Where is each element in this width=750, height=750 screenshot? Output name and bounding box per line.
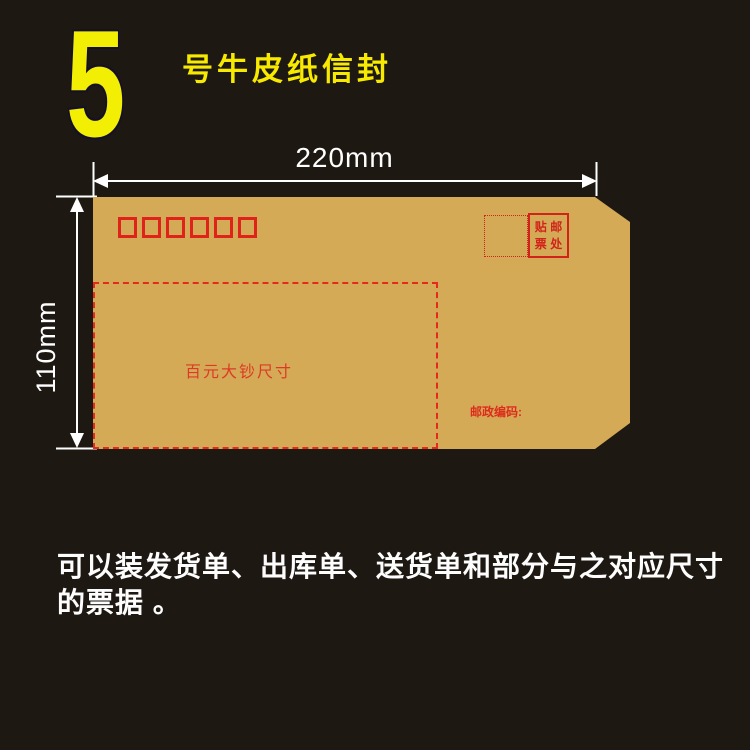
stamp-area-char: 邮 <box>550 221 562 233</box>
postal-code-box <box>238 217 257 238</box>
stamp-area-char: 票 <box>535 238 547 250</box>
width-dimension-label: 220mm <box>93 142 596 174</box>
product-title: 号牛皮纸信封 <box>182 44 392 89</box>
stamp-area-dotted-box <box>484 215 528 257</box>
stamp-area-char: 贴 <box>535 221 547 233</box>
postal-code-boxes <box>118 217 257 238</box>
stamp-area-box: 贴 邮 票 处 <box>528 213 569 258</box>
postal-code-box <box>118 217 137 238</box>
envelope-graphic: 贴 邮 票 处 百元大钞尺寸 邮政编码: <box>93 197 630 449</box>
postal-code-box <box>142 217 161 238</box>
description-line-1: 可以装发货单、出库单、送货单和部分与之对应尺寸 <box>57 549 727 585</box>
description-line-2: 的票据 。 <box>57 585 727 621</box>
height-dimension-label: 110mm <box>31 267 65 427</box>
product-description: 可以装发货单、出库单、送货单和部分与之对应尺寸 的票据 。 <box>57 549 727 621</box>
product-image: 5 号牛皮纸信封 220mm 110mm 贴 邮 票 <box>0 0 750 750</box>
postcode-label: 邮政编码: <box>470 403 522 420</box>
postal-code-box <box>190 217 209 238</box>
stamp-area-char: 处 <box>550 238 562 250</box>
postal-code-box <box>214 217 233 238</box>
postal-code-box <box>166 217 185 238</box>
cash-size-label: 百元大钞尺寸 <box>185 358 293 382</box>
envelope-size-number: 5 <box>66 8 125 160</box>
